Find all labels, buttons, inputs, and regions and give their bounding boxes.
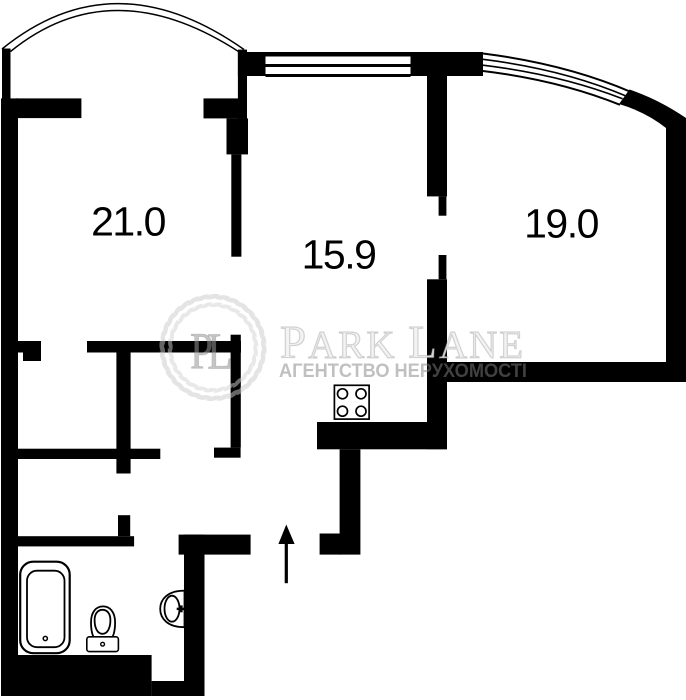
svg-text:L: L — [207, 323, 232, 380]
svg-text:19.0: 19.0 — [524, 201, 598, 247]
svg-text:21.0: 21.0 — [91, 199, 165, 245]
svg-text:АГЕНТСТВО НЕРУХОМОСТІ: АГЕНТСТВО НЕРУХОМОСТІ — [279, 360, 527, 382]
svg-text:15.9: 15.9 — [302, 232, 376, 278]
